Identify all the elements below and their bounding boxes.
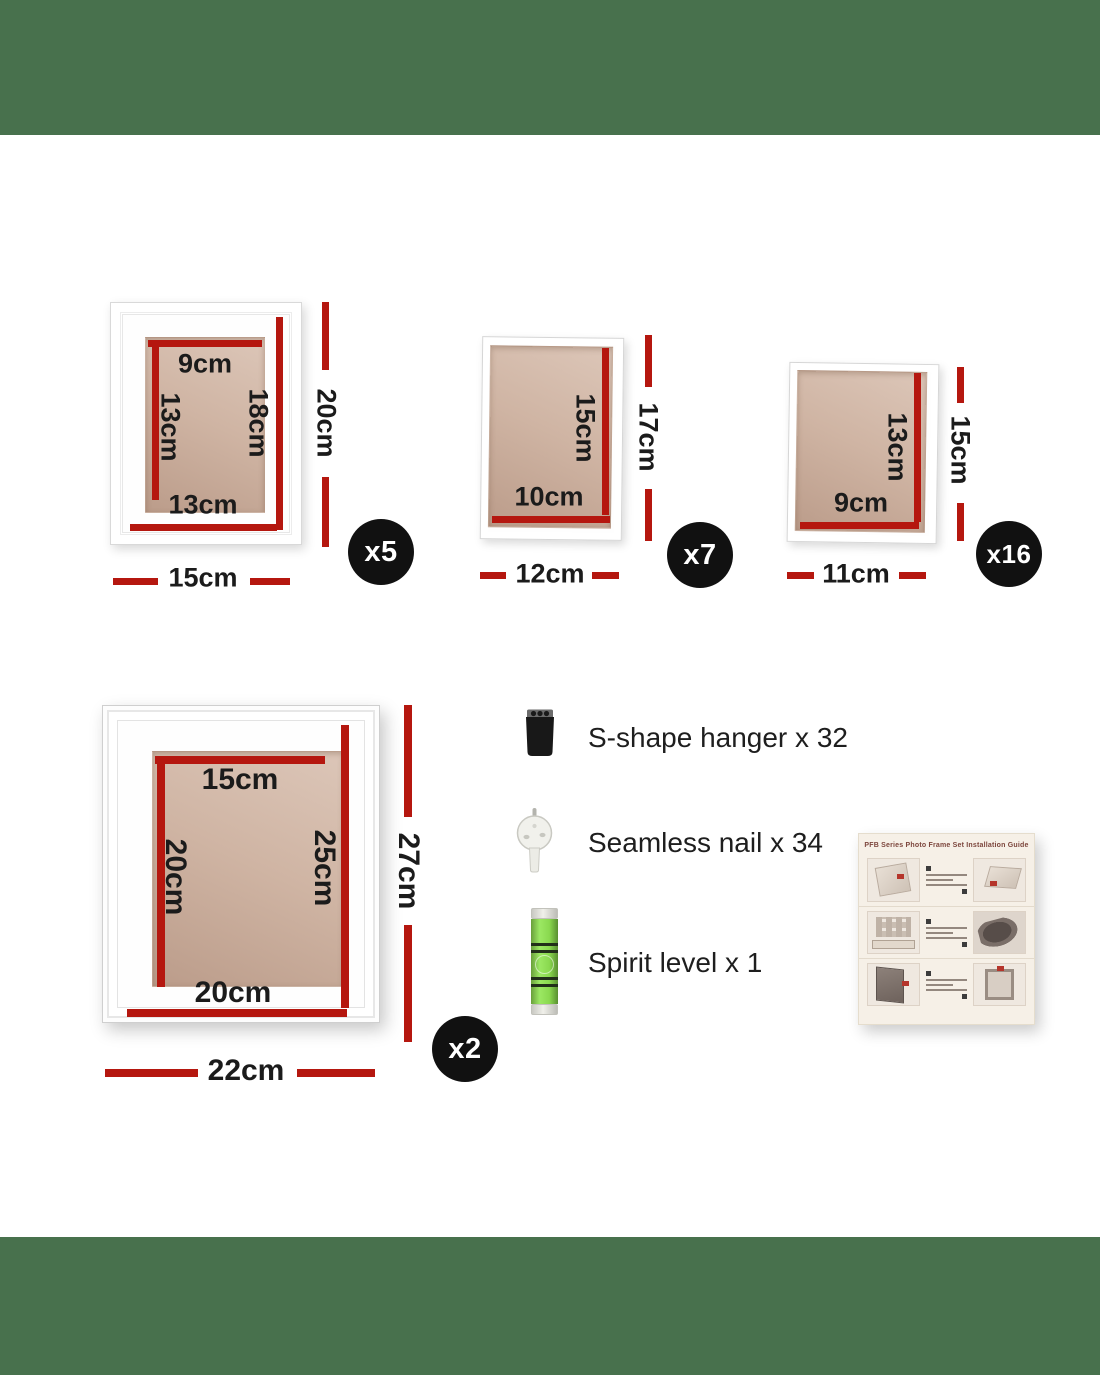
installation-guide: PFB Series Photo Frame Set Installation … (858, 833, 1035, 1025)
guide-panel (973, 963, 1026, 1006)
dim-label-inner-top: 15cm (202, 763, 279, 797)
guide-title: PFB Series Photo Frame Set Installation … (864, 842, 1029, 849)
quantity-badge-x7: x7 (667, 522, 733, 588)
dim-line-outer-height (645, 335, 652, 387)
guide-panel (867, 858, 920, 902)
dim-line-inner-top (148, 340, 262, 347)
dim-line-outer-height (322, 477, 329, 547)
top-banner (0, 0, 1100, 135)
dim-label-inner-right: 25cm (307, 830, 341, 907)
guide-text (924, 858, 970, 902)
s-shape-hanger-icon (520, 708, 560, 758)
dim-label-outer-height: 17cm (633, 402, 664, 471)
dim-line-outer-width (297, 1069, 375, 1077)
product-infographic: 9cm 13cm 18cm 13cm 20cm 15cm x5 15cm 10c… (0, 0, 1100, 1375)
dim-line-inner-bottom (130, 524, 277, 531)
dim-line-outer-width (899, 572, 926, 579)
dim-line-outer-width (592, 572, 619, 579)
dim-line-outer-width (113, 578, 158, 585)
dim-label-inner-left: 20cm (158, 839, 192, 916)
dim-label-inner-right: 13cm (882, 412, 913, 481)
dim-line-inner-right (602, 348, 609, 515)
dim-line-outer-height (322, 302, 329, 370)
quantity-badge-x16: x16 (976, 521, 1042, 587)
guide-panel (973, 858, 1026, 902)
dim-label-outer-width: 11cm (822, 559, 890, 590)
dim-line-inner-bottom (492, 516, 610, 523)
level-stripe (531, 943, 558, 953)
dim-line-outer-width (787, 572, 814, 579)
dim-label-outer-height: 15cm (945, 415, 976, 484)
dim-label-inner-bottom: 13cm (168, 490, 237, 521)
badge-text: x16 (987, 539, 1032, 570)
dim-line-outer-width (480, 572, 506, 579)
level-cap (531, 1004, 558, 1015)
quantity-badge-x5: x5 (348, 519, 414, 585)
quantity-badge-x2: x2 (432, 1016, 498, 1082)
dim-label-outer-height: 20cm (311, 388, 342, 457)
dim-label-inner-right: 15cm (570, 393, 601, 462)
accessory-label-level: Spirit level x 1 (588, 947, 762, 979)
guide-text (924, 911, 970, 954)
badge-text: x7 (683, 539, 716, 572)
dim-line-inner-bottom (800, 522, 919, 529)
dim-line-outer-height (957, 367, 964, 403)
dim-label-outer-height: 27cm (391, 833, 425, 910)
badge-text: x2 (448, 1033, 481, 1066)
dim-label-outer-width: 22cm (208, 1054, 285, 1088)
bottom-banner (0, 1237, 1100, 1375)
dim-line-outer-width (105, 1069, 198, 1077)
dim-line-inner-right (341, 725, 349, 1008)
dim-label-inner-bottom: 20cm (195, 976, 272, 1010)
dim-line-inner-bottom (127, 1009, 347, 1017)
dim-label-inner-left: 13cm (155, 392, 186, 461)
guide-row (859, 854, 1034, 906)
level-cap (531, 908, 558, 919)
dim-line-inner-right (276, 317, 283, 530)
dim-label-outer-width: 15cm (168, 563, 237, 594)
seamless-nail-icon (514, 806, 556, 874)
accessory-label-nail: Seamless nail x 34 (588, 827, 823, 859)
dim-label-inner-top: 9cm (178, 349, 232, 380)
dim-line-outer-width (250, 578, 290, 585)
level-body (531, 919, 558, 1004)
guide-panel (867, 963, 920, 1006)
dim-line-outer-height (404, 705, 412, 817)
guide-row (859, 958, 1034, 1010)
dim-line-outer-height (645, 489, 652, 541)
accessory-label-hanger: S-shape hanger x 32 (588, 722, 848, 754)
guide-panel (973, 911, 1026, 954)
dim-line-outer-height (957, 503, 964, 541)
dim-label-inner-bottom: 9cm (834, 488, 888, 519)
level-stripe (531, 977, 558, 987)
level-bubble (535, 955, 554, 974)
dim-label-outer-width: 12cm (515, 559, 584, 590)
spirit-level-icon (531, 908, 558, 1015)
guide-row (859, 906, 1034, 958)
guide-text (924, 963, 970, 1006)
dim-label-inner-right: 18cm (243, 388, 274, 457)
guide-panel (867, 911, 920, 954)
dim-line-inner-right (914, 373, 921, 522)
dim-label-inner-bottom: 10cm (514, 482, 583, 513)
dim-line-outer-height (404, 925, 412, 1042)
badge-text: x5 (364, 536, 397, 569)
